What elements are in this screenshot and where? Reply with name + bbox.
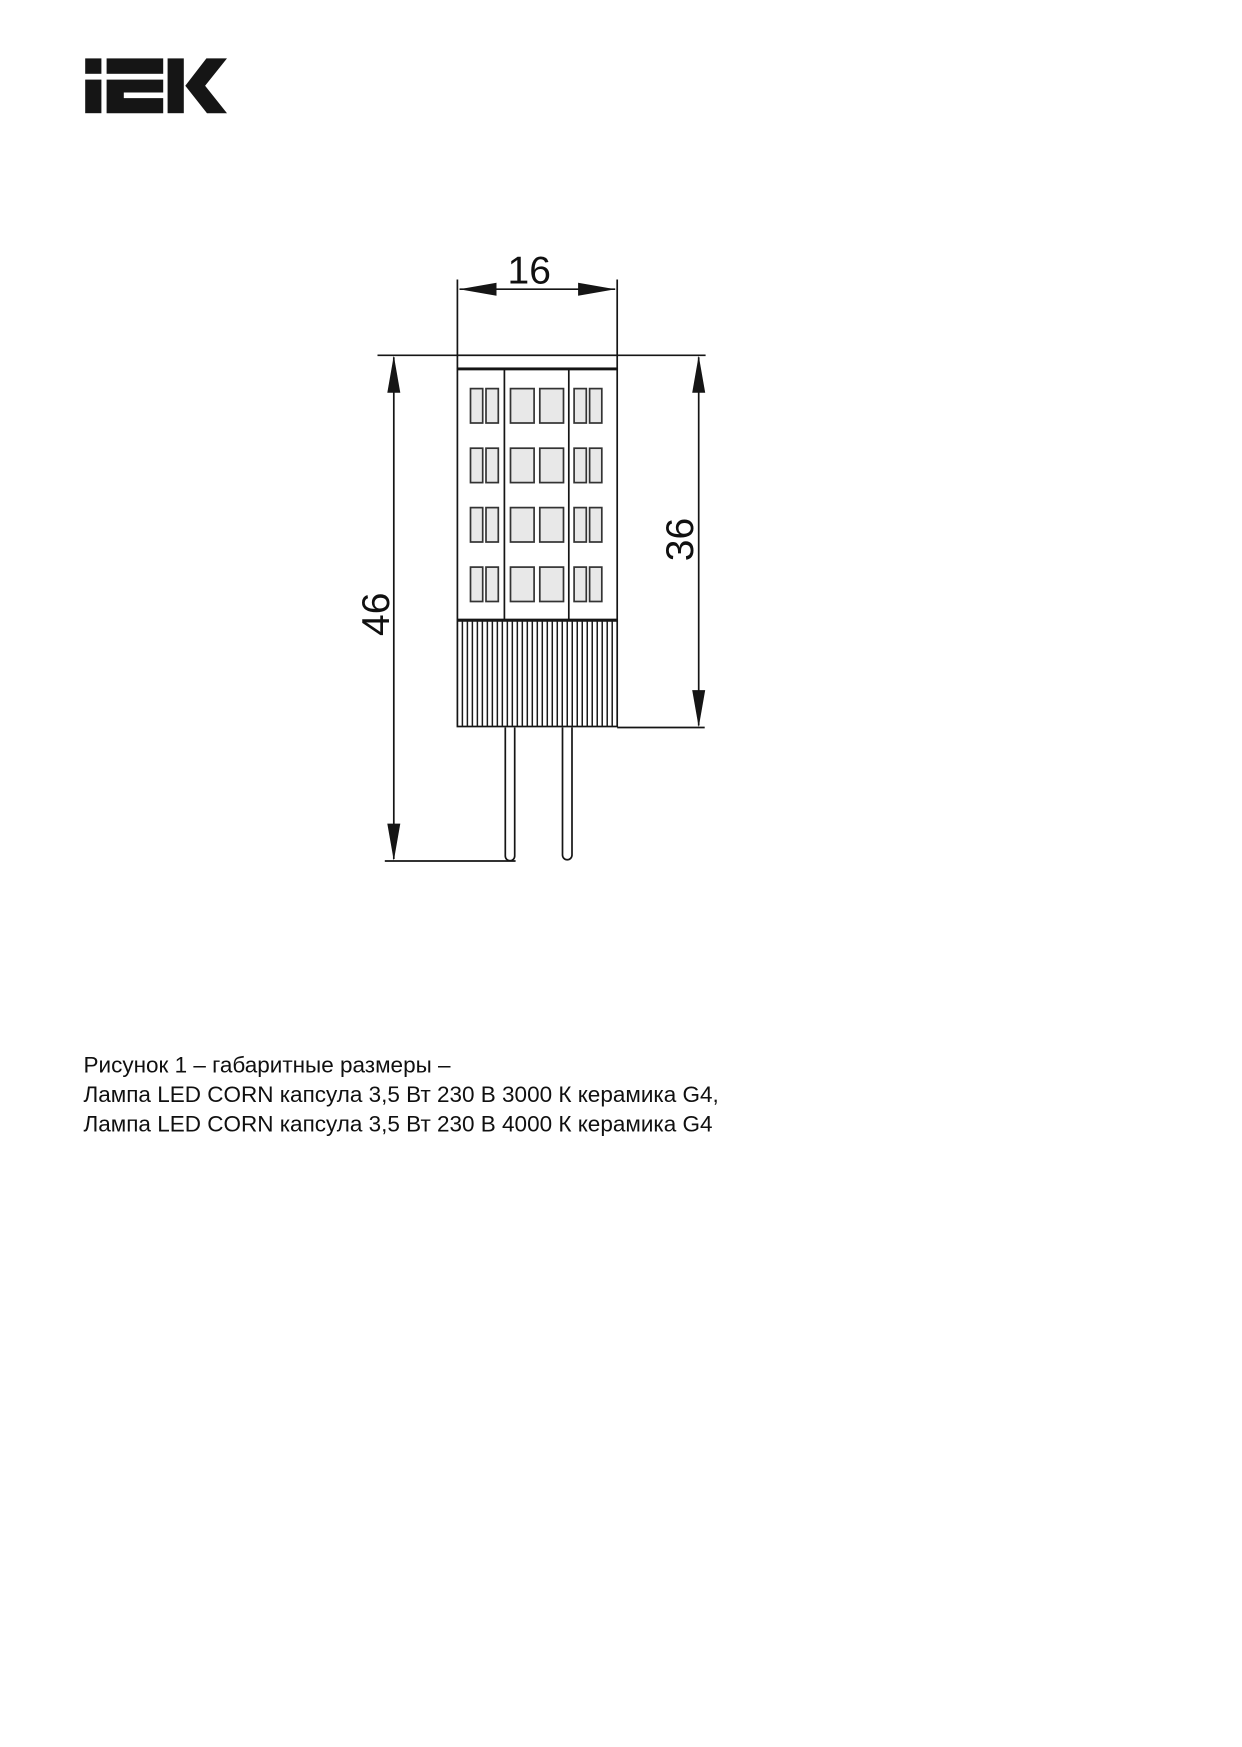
svg-text:Лампа LED CORN капсула 3,5 Вт: Лампа LED CORN капсула 3,5 Вт 230 В 4000…: [84, 1112, 713, 1137]
svg-text:46: 46: [355, 593, 398, 636]
svg-text:16: 16: [508, 249, 551, 292]
svg-text:36: 36: [659, 518, 702, 561]
svg-text:Лампа LED CORN капсула 3,5 Вт: Лампа LED CORN капсула 3,5 Вт 230 В 3000…: [84, 1082, 719, 1107]
svg-text:Рисунок 1 – габаритные размеры: Рисунок 1 – габаритные размеры –: [84, 1052, 452, 1077]
